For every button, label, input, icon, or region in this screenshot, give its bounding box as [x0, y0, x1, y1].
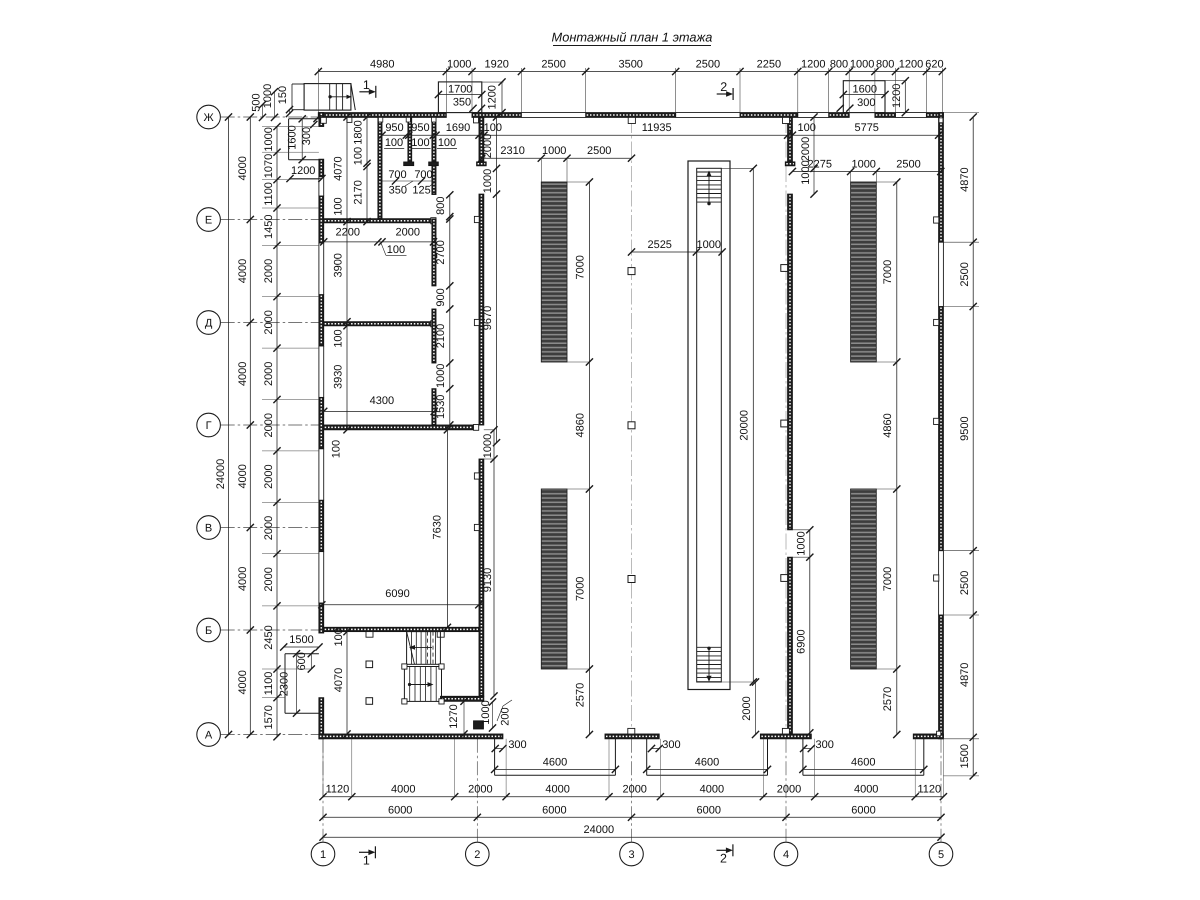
svg-text:2100: 2100 — [435, 324, 447, 348]
svg-text:4000: 4000 — [237, 464, 249, 488]
svg-text:100: 100 — [385, 137, 403, 149]
svg-text:2170: 2170 — [353, 180, 365, 204]
svg-text:4300: 4300 — [370, 395, 394, 407]
svg-text:4000: 4000 — [545, 784, 569, 796]
svg-text:4000: 4000 — [237, 362, 249, 386]
svg-text:2000: 2000 — [741, 696, 753, 720]
svg-text:2000: 2000 — [263, 567, 275, 591]
svg-text:2500: 2500 — [587, 145, 611, 157]
svg-text:3930: 3930 — [332, 365, 344, 389]
svg-text:800: 800 — [876, 59, 894, 71]
svg-text:5: 5 — [938, 849, 944, 861]
svg-text:6090: 6090 — [385, 588, 409, 600]
svg-text:4000: 4000 — [391, 784, 415, 796]
svg-text:2500: 2500 — [959, 262, 971, 286]
svg-text:3900: 3900 — [332, 253, 344, 277]
svg-text:4000: 4000 — [700, 784, 724, 796]
svg-text:4980: 4980 — [370, 59, 394, 71]
svg-text:100: 100 — [332, 329, 344, 347]
svg-text:1270: 1270 — [448, 704, 460, 728]
svg-text:1000: 1000 — [851, 158, 875, 170]
svg-text:4000: 4000 — [854, 784, 878, 796]
svg-text:300: 300 — [662, 739, 680, 751]
svg-text:2000: 2000 — [468, 784, 492, 796]
svg-text:Монтажный план 1 этажа: Монтажный план 1 этажа — [552, 30, 713, 45]
svg-text:24000: 24000 — [584, 824, 615, 836]
svg-text:1: 1 — [363, 854, 370, 868]
svg-text:2700: 2700 — [435, 240, 447, 264]
svg-text:1070: 1070 — [263, 154, 275, 178]
svg-text:1200: 1200 — [899, 59, 923, 71]
svg-text:1000: 1000 — [542, 145, 566, 157]
svg-text:6000: 6000 — [388, 804, 412, 816]
svg-text:9670: 9670 — [482, 306, 494, 330]
svg-text:1600: 1600 — [853, 83, 877, 95]
svg-text:600: 600 — [296, 652, 308, 670]
svg-text:100: 100 — [484, 122, 502, 134]
svg-text:2300: 2300 — [279, 672, 291, 696]
svg-text:1000: 1000 — [697, 239, 721, 251]
svg-text:2500: 2500 — [959, 571, 971, 595]
svg-text:2000: 2000 — [482, 134, 494, 158]
svg-text:24000: 24000 — [215, 459, 227, 490]
svg-text:1200: 1200 — [486, 85, 498, 109]
svg-text:4000: 4000 — [237, 259, 249, 283]
svg-text:2310: 2310 — [500, 145, 524, 157]
svg-text:1500: 1500 — [959, 744, 971, 768]
svg-text:7000: 7000 — [574, 577, 586, 601]
svg-text:1500: 1500 — [289, 634, 313, 646]
svg-text:100: 100 — [798, 122, 816, 134]
svg-text:1690: 1690 — [446, 122, 470, 134]
svg-text:4860: 4860 — [574, 413, 586, 437]
svg-text:2000: 2000 — [263, 464, 275, 488]
svg-text:300: 300 — [857, 97, 875, 109]
svg-text:7000: 7000 — [574, 255, 586, 279]
svg-text:6000: 6000 — [851, 804, 875, 816]
svg-text:7630: 7630 — [431, 515, 443, 539]
svg-text:7000: 7000 — [882, 260, 894, 284]
svg-text:1570: 1570 — [263, 705, 275, 729]
svg-text:А: А — [205, 730, 213, 742]
svg-text:1000: 1000 — [263, 127, 275, 151]
svg-text:1600: 1600 — [287, 125, 299, 149]
svg-text:11935: 11935 — [642, 122, 672, 134]
svg-text:Б: Б — [205, 625, 212, 637]
svg-text:4000: 4000 — [237, 156, 249, 180]
svg-text:150: 150 — [277, 86, 289, 104]
svg-text:2000: 2000 — [622, 784, 646, 796]
svg-text:1200: 1200 — [291, 165, 315, 177]
svg-text:2525: 2525 — [647, 239, 671, 251]
svg-text:300: 300 — [301, 127, 313, 145]
svg-text:4070: 4070 — [332, 156, 344, 180]
svg-text:2: 2 — [474, 849, 480, 861]
svg-text:100: 100 — [332, 197, 344, 215]
svg-text:300: 300 — [508, 739, 526, 751]
svg-text:2000: 2000 — [263, 413, 275, 437]
svg-text:500: 500 — [250, 93, 262, 111]
svg-text:1000: 1000 — [800, 160, 812, 184]
svg-text:1000: 1000 — [480, 700, 492, 724]
svg-text:300: 300 — [816, 739, 834, 751]
svg-text:Д: Д — [205, 318, 213, 330]
svg-text:4000: 4000 — [237, 670, 249, 694]
svg-text:3: 3 — [628, 849, 634, 861]
svg-text:100: 100 — [331, 440, 343, 458]
svg-text:2000: 2000 — [263, 259, 275, 283]
svg-text:1000: 1000 — [482, 169, 494, 193]
svg-text:2570: 2570 — [574, 683, 586, 707]
svg-text:2000: 2000 — [777, 784, 801, 796]
svg-text:6000: 6000 — [697, 804, 721, 816]
svg-text:1200: 1200 — [801, 59, 825, 71]
svg-text:1120: 1120 — [326, 784, 350, 796]
svg-text:100: 100 — [438, 137, 456, 149]
svg-text:4870: 4870 — [959, 167, 971, 191]
svg-text:2500: 2500 — [896, 158, 920, 170]
svg-text:4: 4 — [783, 849, 789, 861]
svg-text:6900: 6900 — [795, 629, 807, 653]
svg-text:1100: 1100 — [263, 672, 275, 696]
svg-text:1000: 1000 — [447, 59, 471, 71]
svg-text:2000: 2000 — [800, 137, 812, 161]
svg-text:9500: 9500 — [959, 416, 971, 440]
svg-text:7000: 7000 — [882, 567, 894, 591]
svg-text:1920: 1920 — [484, 59, 508, 71]
svg-text:2200: 2200 — [336, 227, 360, 239]
svg-text:1000: 1000 — [850, 59, 874, 71]
svg-text:3500: 3500 — [618, 59, 642, 71]
svg-text:5775: 5775 — [854, 122, 878, 134]
svg-text:1000: 1000 — [262, 84, 274, 108]
svg-text:1000: 1000 — [435, 364, 447, 388]
svg-text:2000: 2000 — [263, 310, 275, 334]
svg-text:2450: 2450 — [263, 625, 275, 649]
svg-text:2: 2 — [720, 80, 727, 94]
svg-text:Ж: Ж — [204, 112, 214, 124]
svg-text:2: 2 — [720, 852, 727, 866]
svg-text:100: 100 — [353, 147, 365, 165]
svg-text:1000: 1000 — [482, 434, 494, 458]
svg-text:1700: 1700 — [448, 83, 472, 95]
svg-text:1000: 1000 — [795, 531, 807, 555]
svg-text:2250: 2250 — [757, 59, 781, 71]
svg-text:1200: 1200 — [891, 84, 903, 108]
svg-text:1450: 1450 — [263, 214, 275, 238]
svg-text:1120: 1120 — [917, 784, 941, 796]
svg-text:950: 950 — [385, 122, 403, 134]
svg-text:Г: Г — [206, 420, 212, 432]
svg-text:350: 350 — [453, 97, 471, 109]
svg-text:620: 620 — [925, 59, 943, 71]
svg-text:125: 125 — [412, 184, 430, 196]
svg-text:1: 1 — [363, 78, 370, 92]
svg-text:2000: 2000 — [263, 362, 275, 386]
svg-text:2500: 2500 — [696, 59, 720, 71]
svg-text:950: 950 — [411, 122, 429, 134]
svg-text:2000: 2000 — [396, 227, 420, 239]
svg-text:4870: 4870 — [959, 663, 971, 687]
svg-text:4860: 4860 — [882, 413, 894, 437]
svg-text:4600: 4600 — [695, 757, 719, 769]
svg-text:Е: Е — [205, 215, 212, 227]
svg-text:4600: 4600 — [851, 757, 875, 769]
svg-text:В: В — [205, 523, 212, 535]
svg-text:2500: 2500 — [541, 59, 565, 71]
svg-text:800: 800 — [830, 59, 848, 71]
svg-text:4600: 4600 — [543, 757, 567, 769]
svg-text:1530: 1530 — [435, 395, 447, 419]
svg-text:700: 700 — [414, 169, 432, 181]
svg-text:1100: 1100 — [263, 182, 275, 206]
svg-text:4070: 4070 — [333, 668, 345, 692]
svg-text:350: 350 — [389, 184, 407, 196]
svg-text:1: 1 — [320, 849, 326, 861]
svg-text:900: 900 — [435, 288, 447, 306]
svg-text:9130: 9130 — [482, 568, 494, 592]
svg-text:4000: 4000 — [237, 567, 249, 591]
svg-text:2000: 2000 — [263, 516, 275, 540]
svg-text:100: 100 — [411, 137, 429, 149]
svg-text:1800: 1800 — [353, 120, 365, 144]
svg-text:800: 800 — [435, 197, 447, 215]
svg-text:100: 100 — [333, 628, 345, 646]
svg-text:700: 700 — [388, 169, 406, 181]
svg-text:20000: 20000 — [738, 410, 750, 441]
svg-text:6000: 6000 — [542, 804, 566, 816]
svg-text:2570: 2570 — [882, 687, 894, 711]
svg-text:100: 100 — [387, 244, 405, 256]
